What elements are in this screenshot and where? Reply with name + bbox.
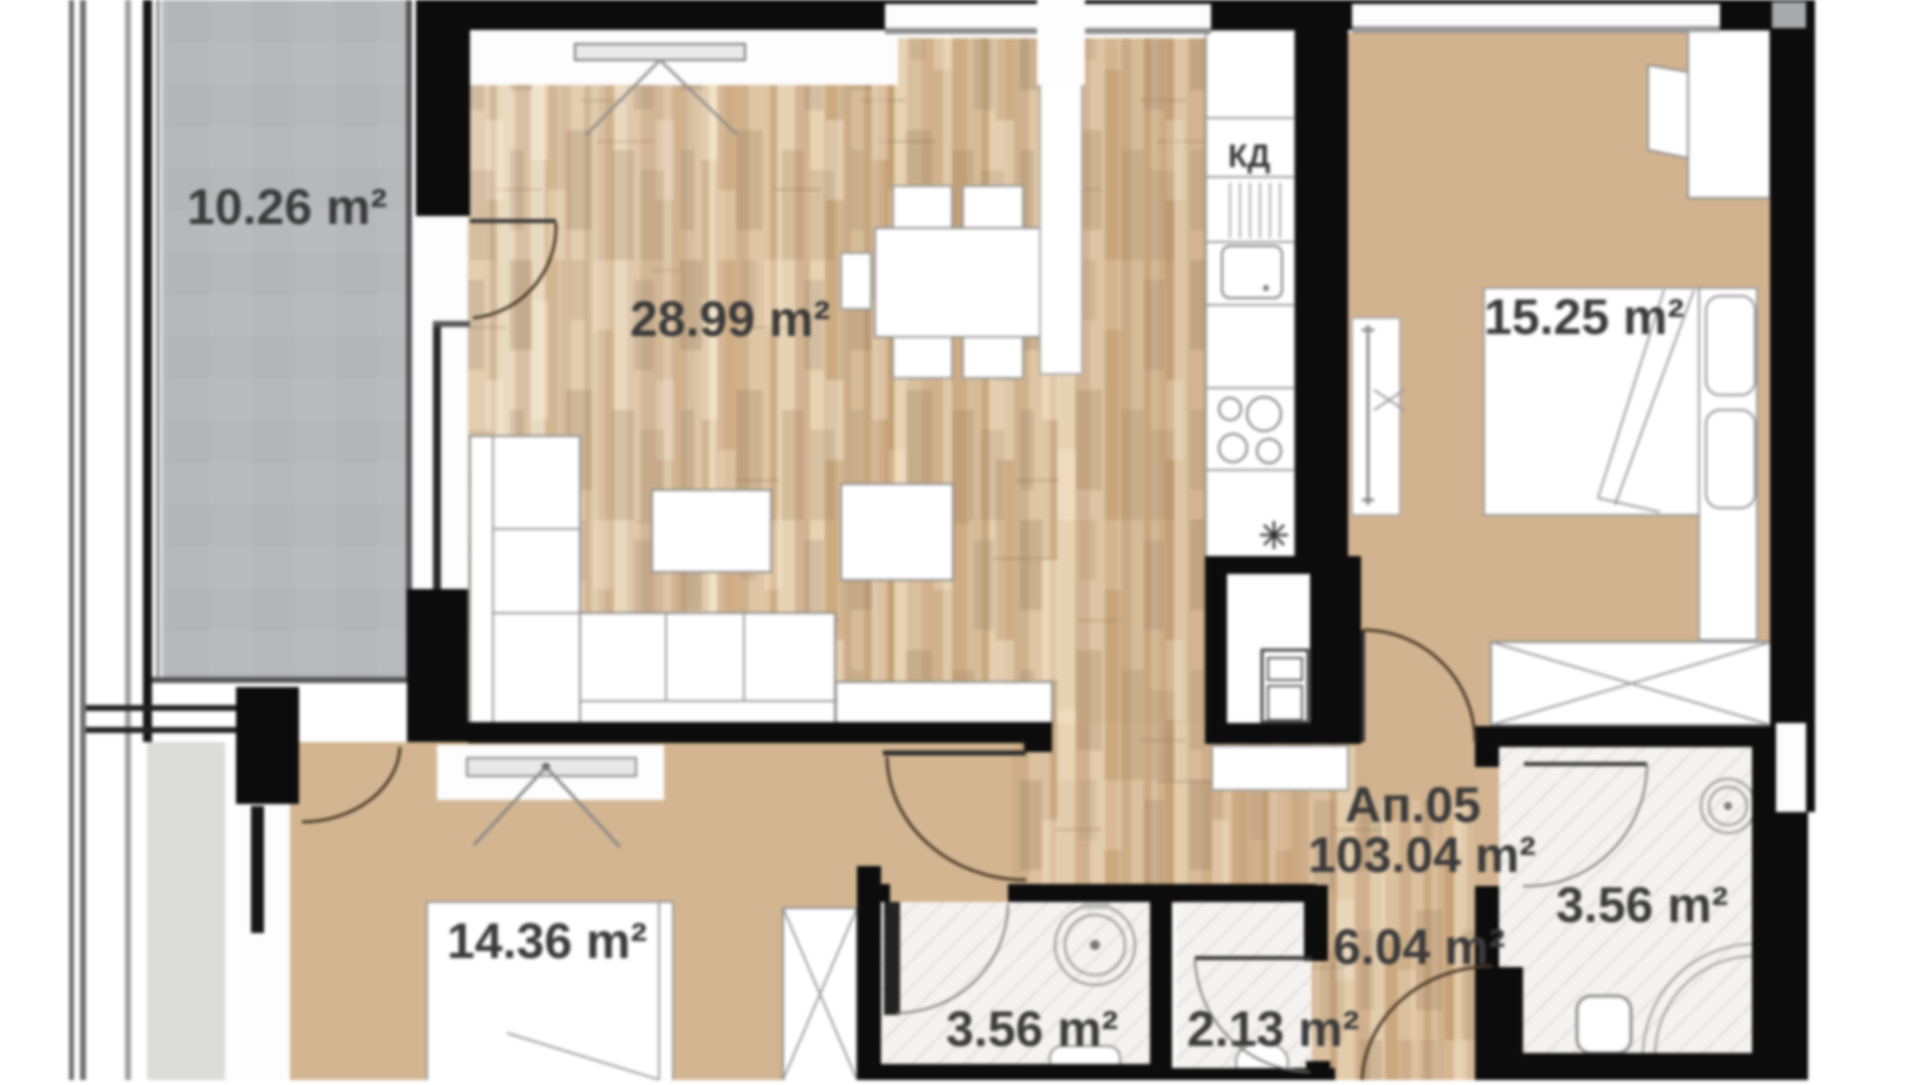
svg-text:КД: КД: [1228, 138, 1271, 174]
svg-text:10.26 m²: 10.26 m²: [187, 179, 387, 235]
svg-text:14.36 m²: 14.36 m²: [447, 913, 647, 969]
svg-text:3.56 m²: 3.56 m²: [1556, 877, 1728, 933]
svg-text:6.04 m²: 6.04 m²: [1333, 919, 1505, 975]
svg-text:Ап.05: Ап.05: [1345, 777, 1481, 833]
svg-text:2.13 m²: 2.13 m²: [1187, 1001, 1359, 1057]
svg-text:15.25 m²: 15.25 m²: [1484, 289, 1684, 345]
svg-text:3.56 m²: 3.56 m²: [946, 1001, 1118, 1057]
svg-text:28.99 m²: 28.99 m²: [630, 291, 830, 347]
svg-text:103.04 m²: 103.04 m²: [1308, 827, 1536, 883]
